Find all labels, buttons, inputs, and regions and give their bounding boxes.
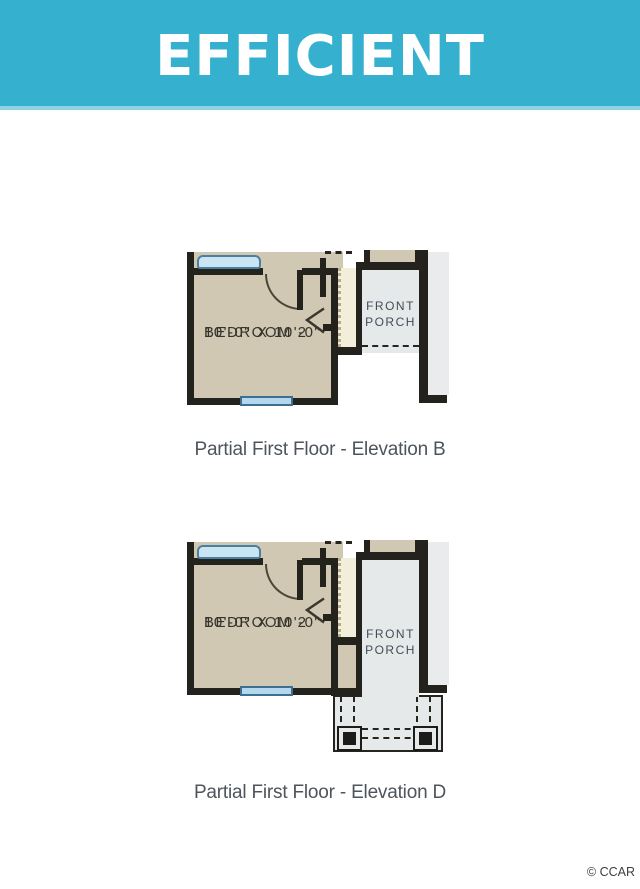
room-dimensions: 10'-0" X 10'-0" [204, 614, 321, 632]
floorplan-elevation-d: BEDROOM 2 10'-0" X 10'-0" FRONT PORCH [185, 540, 453, 765]
hall-area [335, 641, 356, 688]
wall-segment [364, 250, 370, 270]
banner: EFFICIENT [0, 0, 640, 110]
porch-column [337, 726, 362, 751]
listing-image: EFFICIENT BEDROOM 2 10'-0" X 10'-0" [0, 0, 640, 889]
wall-segment [333, 347, 362, 355]
wall-segment [323, 324, 339, 331]
caption-elevation-d: Partial First Floor - Elevation D [0, 782, 640, 804]
closet-strip [338, 558, 356, 637]
porch-label: FRONT PORCH [362, 626, 419, 658]
banner-accent-line [0, 106, 640, 110]
porch-column [413, 726, 438, 751]
wall-segment [323, 614, 339, 621]
side-wall-strip [428, 542, 449, 685]
cutoff-dashed-wall [325, 541, 352, 544]
wall-segment [187, 252, 194, 269]
wall-segment [297, 560, 303, 600]
banner-title: EFFICIENT [0, 0, 640, 106]
wall-segment [187, 542, 194, 559]
wall-segment [297, 270, 303, 310]
side-wall-strip [428, 252, 449, 395]
wall-segment [419, 252, 428, 395]
closet-strip [338, 268, 356, 347]
wall-segment [320, 258, 326, 297]
wall-segment [364, 540, 370, 560]
cutoff-dashed-wall [325, 251, 352, 254]
room-dimensions: 10'-0" X 10'-0" [204, 324, 321, 342]
wall-segment [356, 552, 362, 695]
porch-label: FRONT PORCH [362, 298, 419, 330]
floorplan-elevation-b: BEDROOM 2 10'-0" X 10'-0" FRONT PORCH [185, 250, 453, 410]
caption-elevation-b: Partial First Floor - Elevation B [0, 439, 640, 461]
porch-edge-dashed-line [362, 345, 419, 347]
window-icon [240, 686, 293, 696]
window-icon [240, 396, 293, 406]
wall-segment [331, 688, 362, 696]
window-icon [197, 545, 261, 559]
wall-segment [320, 548, 326, 587]
wall-segment [419, 542, 428, 692]
wall-segment [419, 395, 447, 403]
wall-segment [419, 685, 447, 693]
window-icon [197, 255, 261, 269]
ccar-watermark: © CCAR [587, 865, 635, 879]
